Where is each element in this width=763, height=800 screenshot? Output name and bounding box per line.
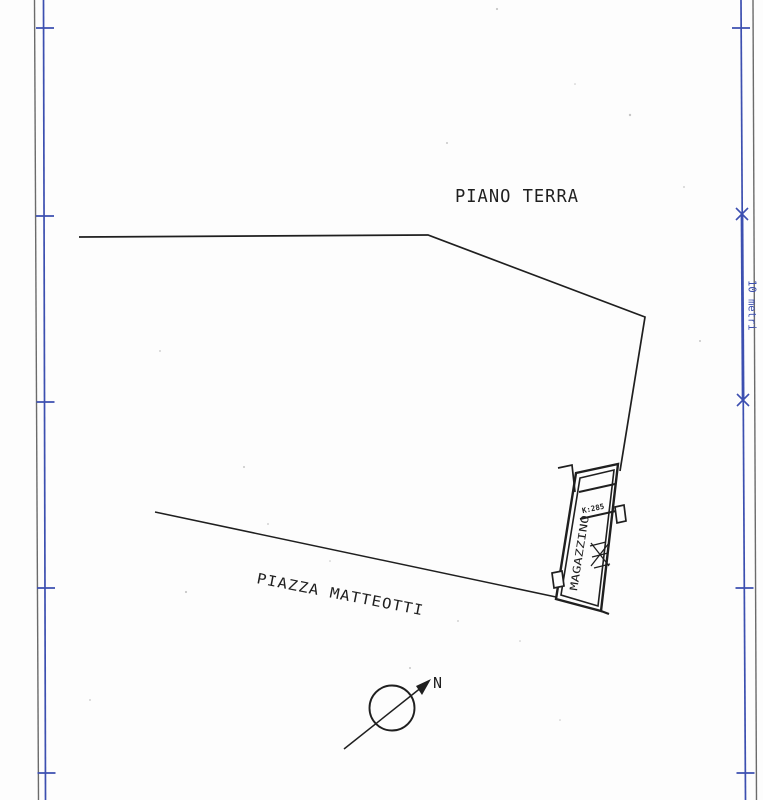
- scanned-plan-page: 10 metri PIANO TERRA PIAZZA MATTEOTTI: [0, 0, 763, 800]
- scale-label: 10 metri: [746, 280, 758, 331]
- site-plan-drawing: 10 metri PIANO TERRA PIAZZA MATTEOTTI: [0, 0, 763, 800]
- plan-title: PIANO TERRA: [455, 187, 579, 207]
- scale-bar: [742, 214, 743, 400]
- north-label: N: [433, 674, 442, 692]
- door-protrusion: [615, 505, 626, 523]
- wall-notch: [552, 571, 564, 588]
- paper-background: [0, 0, 763, 800]
